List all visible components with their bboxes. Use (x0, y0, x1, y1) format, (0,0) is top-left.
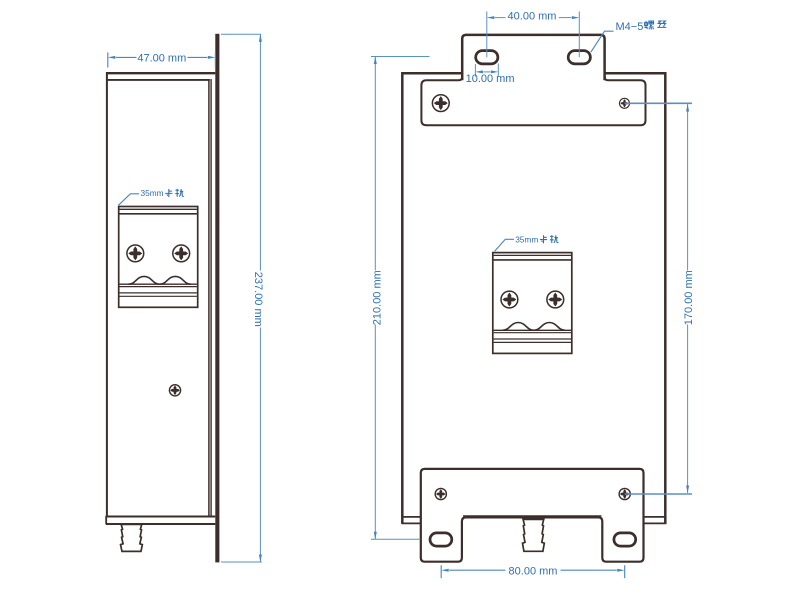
svg-text:M4−5: M4−5 (616, 21, 644, 33)
svg-text:170.00 mm: 170.00 mm (683, 270, 695, 325)
svg-text:210.00 mm: 210.00 mm (371, 270, 383, 325)
svg-text:47.00 mm: 47.00 mm (137, 52, 186, 64)
svg-text:35mm: 35mm (141, 188, 164, 198)
svg-text:80.00 mm: 80.00 mm (509, 565, 558, 577)
svg-text:237.00 mm: 237.00 mm (252, 272, 264, 327)
svg-text:40.00 mm: 40.00 mm (508, 11, 557, 23)
svg-text:35mm: 35mm (515, 234, 538, 244)
svg-text:10.00 mm: 10.00 mm (466, 73, 515, 85)
